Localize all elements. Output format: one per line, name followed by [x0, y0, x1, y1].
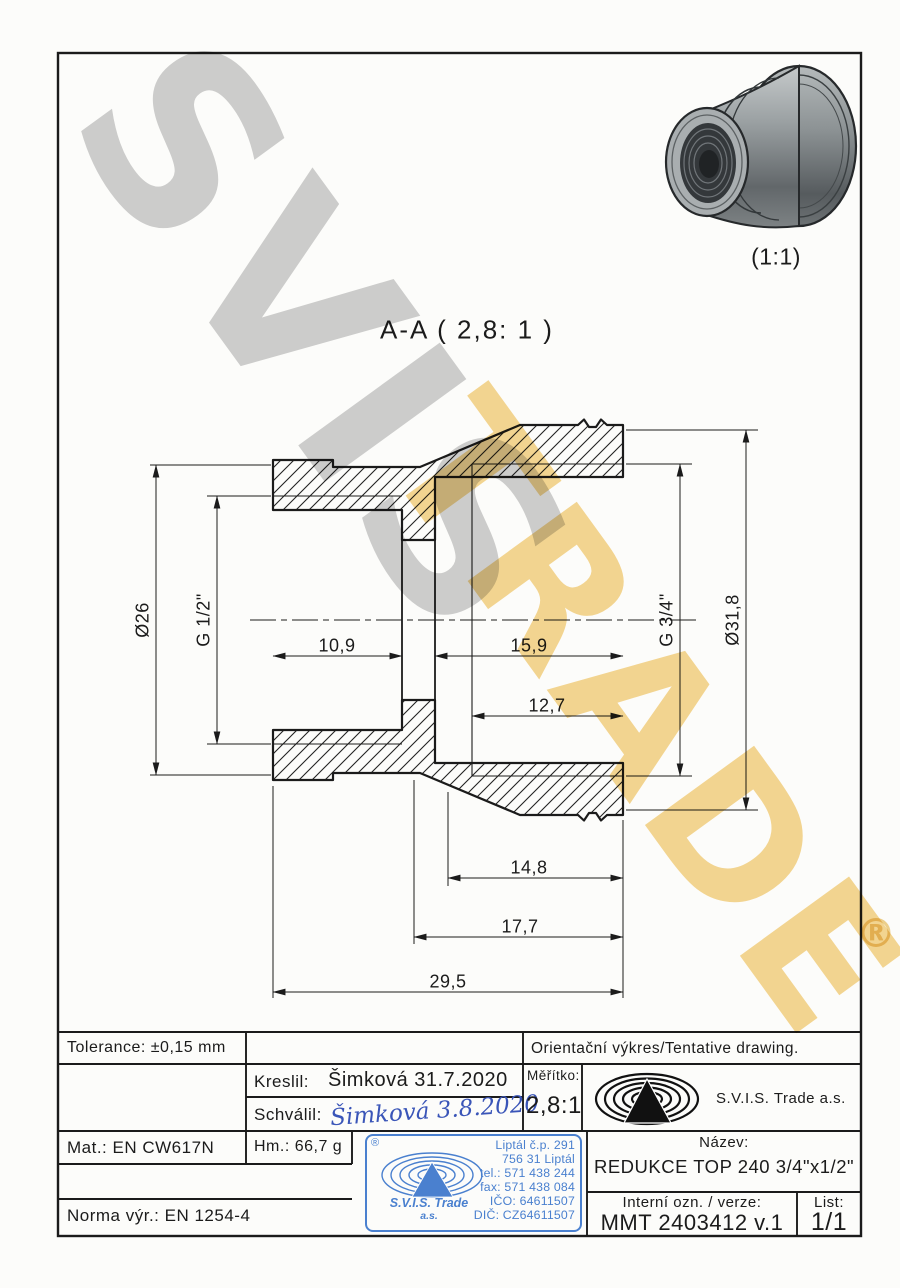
dim-label-od-right: Ø31,8: [723, 594, 744, 646]
tolerance-note: Tolerance: ±0,15 mm: [67, 1039, 226, 1057]
company-stamp: ® S.V.I.S. Trade a.s. Liptál č.p. 291 75…: [365, 1134, 582, 1232]
weight-note: Hm.: 66,7 g: [254, 1138, 342, 1156]
dimension-lines: [156, 430, 746, 992]
stamp-registered-icon: ®: [371, 1137, 379, 1149]
stamp-address-line: tel.: 571 438 244: [474, 1167, 575, 1181]
meritko-label: Měřítko:: [527, 1068, 580, 1083]
schvalil-label: Schválil:: [254, 1105, 322, 1125]
kreslil-value: Šimková 31.7.2020: [328, 1069, 508, 1092]
stamp-address-line: fax: 571 438 084: [474, 1181, 575, 1195]
meritko-value: 2,8:1: [526, 1092, 582, 1120]
interni-value: MMT 2403412 v.1: [601, 1210, 784, 1236]
stamp-address: Liptál č.p. 291 756 31 Liptál tel.: 571 …: [474, 1139, 575, 1222]
pictorial-scale-label: (1:1): [751, 244, 801, 271]
tentative-drawing-note: Orientační výkres/Tentative drawing.: [531, 1040, 799, 1058]
stamp-company: S.V.I.S. Trade: [373, 1196, 485, 1210]
dim-label-od-left: Ø26: [133, 602, 154, 638]
dim-label-depth-right: 15,9: [510, 636, 547, 657]
stamp-logo: [377, 1150, 487, 1200]
dim-label-thread-left: G 1/2": [194, 593, 215, 646]
interni-label: Interní ozn. / verze:: [623, 1194, 762, 1211]
company-name: S.V.I.S. Trade a.s.: [716, 1090, 846, 1107]
stamp-address-line: 756 31 Liptál: [474, 1153, 575, 1167]
material-note: Mat.: EN CW617N: [67, 1138, 214, 1158]
dim-label-total-len: 29,5: [429, 972, 466, 993]
dim-label-depth-left: 10,9: [318, 636, 355, 657]
nazev-label: Název:: [699, 1134, 749, 1151]
stamp-company-suffix: a.s.: [373, 1210, 485, 1222]
dim-label-thread-len-right: 12,7: [528, 696, 565, 717]
company-logo: [596, 1074, 698, 1124]
stamp-address-line: IČO: 64611507: [474, 1195, 575, 1209]
list-value: 1/1: [811, 1208, 847, 1237]
section-wall-top: [273, 420, 623, 541]
section-view: [250, 420, 700, 821]
extension-lines: [150, 430, 758, 998]
section-title: A-A ( 2,8: 1 ): [380, 315, 554, 346]
part-3d-view: [666, 66, 856, 227]
dim-label-thread-right: G 3/4": [657, 593, 678, 646]
part-name: REDUKCE TOP 240 3/4"x1/2": [594, 1156, 854, 1178]
stamp-address-line: DIČ: CZ64611507: [474, 1209, 575, 1223]
dim-label-relief-len: 14,8: [510, 858, 547, 879]
scanned-technical-drawing-page: { "watermarks": { "gray_text": "SVIS", "…: [0, 0, 900, 1288]
stamp-address-line: Liptál č.p. 291: [474, 1139, 575, 1153]
dim-label-body-len: 17,7: [501, 917, 538, 938]
norm-note: Norma výr.: EN 1254-4: [67, 1206, 250, 1226]
kreslil-label: Kreslil:: [254, 1072, 309, 1092]
